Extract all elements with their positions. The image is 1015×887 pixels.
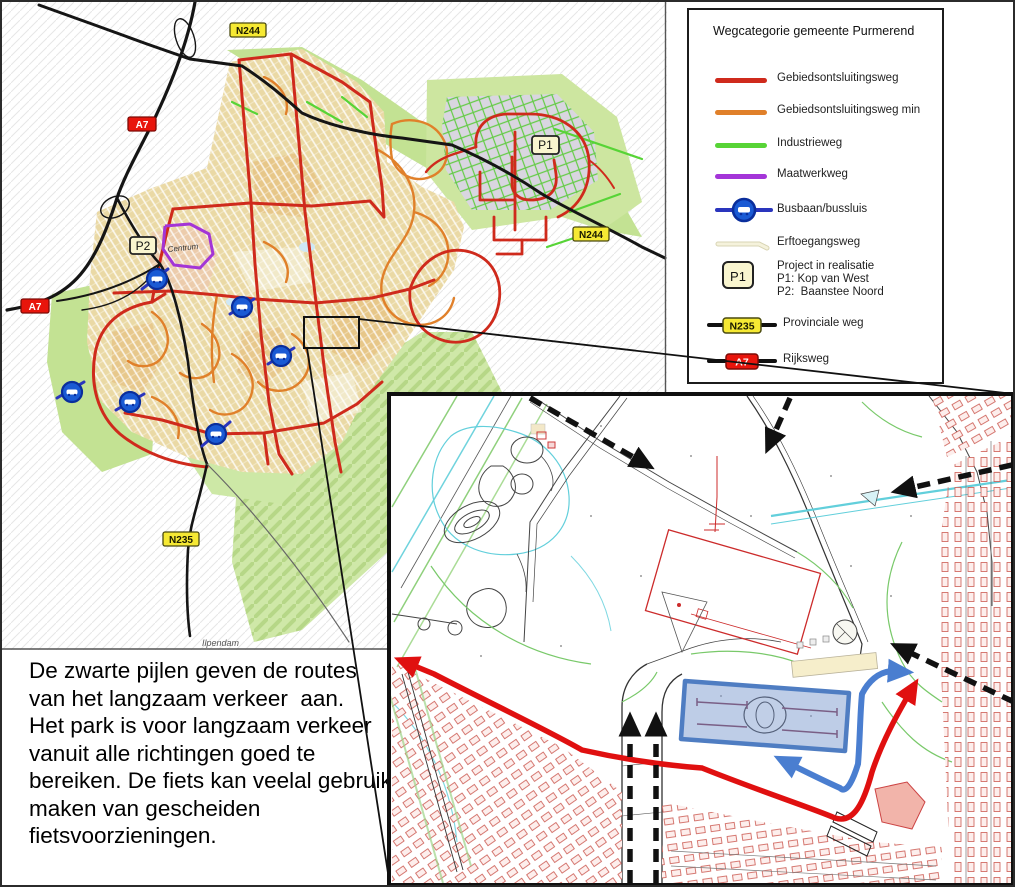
label-ilpendam: Ilpendam xyxy=(202,638,240,648)
badge-a7-left: A7 xyxy=(21,299,49,313)
svg-text:N235: N235 xyxy=(729,321,754,333)
svg-text:P1: P1 xyxy=(730,269,746,284)
inset-detail-map xyxy=(387,392,1015,887)
red-road-line-icon xyxy=(715,67,773,93)
legend-title: Wegcategorie gemeente Purmerend xyxy=(713,24,914,38)
badge-n235: N235 xyxy=(163,532,199,546)
legend-item-busbaan: Busbaan/bussluis xyxy=(689,196,942,226)
annotation-line: Het park is voor langzaam verkeer xyxy=(29,712,401,740)
annotation-line: fietsvoorzieningen. xyxy=(29,822,401,850)
svg-text:A7: A7 xyxy=(136,120,149,131)
annotation-line: maken van gescheiden xyxy=(29,795,401,823)
svg-text:P1: P1 xyxy=(538,138,553,152)
legend-item-erftoegangsweg: Erftoegangsweg xyxy=(689,231,942,257)
legend-item-gebiedsontsluitingsweg: Gebiedsontsluitingsweg xyxy=(689,67,942,93)
svg-text:N244: N244 xyxy=(236,26,260,37)
orange-road-line-icon xyxy=(715,99,773,125)
legend-panel: Wegcategorie gemeente Purmerend Gebiedso… xyxy=(687,8,944,384)
bus-sign-icon xyxy=(715,196,773,222)
n235-badge-icon: N235 xyxy=(707,312,777,338)
legend-item-rijksweg: A7 Rijksweg xyxy=(689,348,942,374)
annotation-line: van het langzaam verkeer aan. xyxy=(29,685,401,713)
cream-road-line-icon xyxy=(715,231,773,257)
figure-canvas: N244 N244 N235 A7 A7 P1 P2 Centrum Ilpen… xyxy=(0,0,1015,887)
svg-text:A7: A7 xyxy=(735,357,749,369)
project-box-icon: P1 xyxy=(721,260,779,286)
legend-item-industrieweg: Industrieweg xyxy=(689,132,942,158)
svg-text:P2: P2 xyxy=(136,239,151,253)
annotation-line: bereiken. De fiets kan veelal gebruik xyxy=(29,767,401,795)
legend-item-provinciale-weg: N235 Provinciale weg xyxy=(689,312,942,338)
project-box-p1: P1 xyxy=(532,136,559,154)
annotation-text: De zwarte pijlen geven de routes van het… xyxy=(29,657,401,850)
green-road-line-icon xyxy=(715,132,773,158)
legend-item-maatwerkweg: Maatwerkweg xyxy=(689,163,942,189)
legend-item-gebiedsontsluitingsweg-min: Gebiedsontsluitingsweg min xyxy=(689,99,942,125)
badge-n244-top: N244 xyxy=(230,23,266,37)
svg-text:A7: A7 xyxy=(29,302,42,313)
badge-n244-right: N244 xyxy=(573,227,609,241)
annotation-line: De zwarte pijlen geven de routes xyxy=(29,657,401,685)
project-box-p2: P2 xyxy=(130,237,156,254)
a7-badge-icon: A7 xyxy=(707,348,777,374)
purple-road-line-icon xyxy=(715,163,773,189)
badge-a7-top: A7 xyxy=(128,117,156,131)
legend-item-project: P1 Project in realisatie P1: Kop van Wes… xyxy=(689,260,942,304)
svg-text:N235: N235 xyxy=(169,535,193,546)
svg-text:N244: N244 xyxy=(579,230,603,241)
annotation-line: vanuit alle richtingen goed te xyxy=(29,740,401,768)
